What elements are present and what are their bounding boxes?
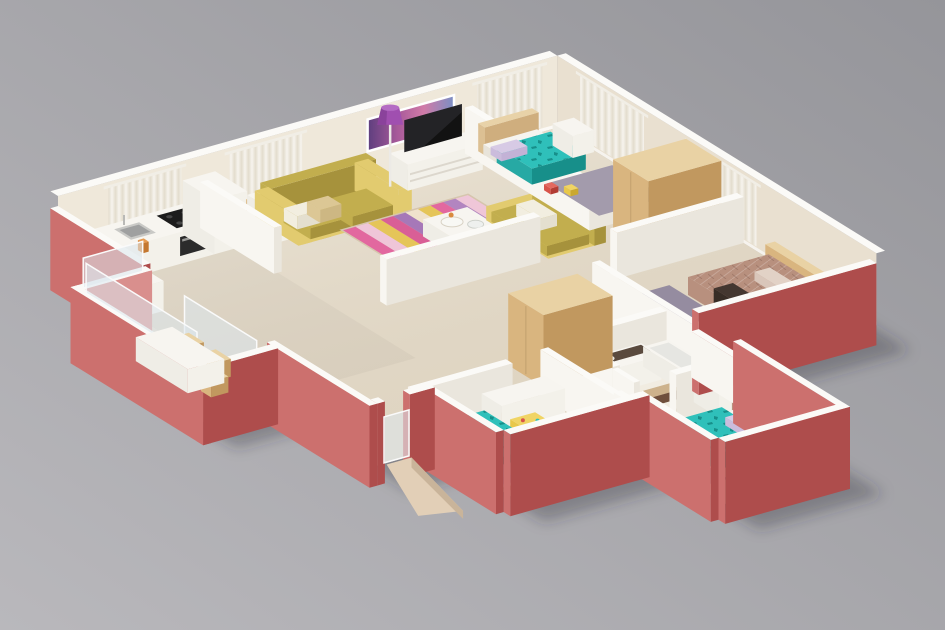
exterior-wall-bedroom3-west-right xyxy=(711,438,719,522)
floor-plan-render xyxy=(0,0,945,630)
exterior-wall-sw-right xyxy=(370,404,378,488)
counter-bottle-right xyxy=(143,242,149,254)
lamp-shade-top xyxy=(381,104,399,110)
exterior-wall-bedroom2-west-right xyxy=(496,430,504,514)
play-table-toy xyxy=(521,418,525,422)
table-plate xyxy=(441,217,463,227)
interior-wall-living-south-left xyxy=(380,255,387,305)
exterior-wall-bedroom2-south-left xyxy=(504,430,511,516)
interior-wall-kitchen-right xyxy=(274,226,282,274)
entry-door xyxy=(384,410,409,463)
table-decor xyxy=(449,213,454,218)
exterior-wall-block-south-left xyxy=(719,438,726,524)
burner xyxy=(176,221,182,224)
floor-plan-stage xyxy=(0,0,945,630)
burner xyxy=(166,215,172,218)
